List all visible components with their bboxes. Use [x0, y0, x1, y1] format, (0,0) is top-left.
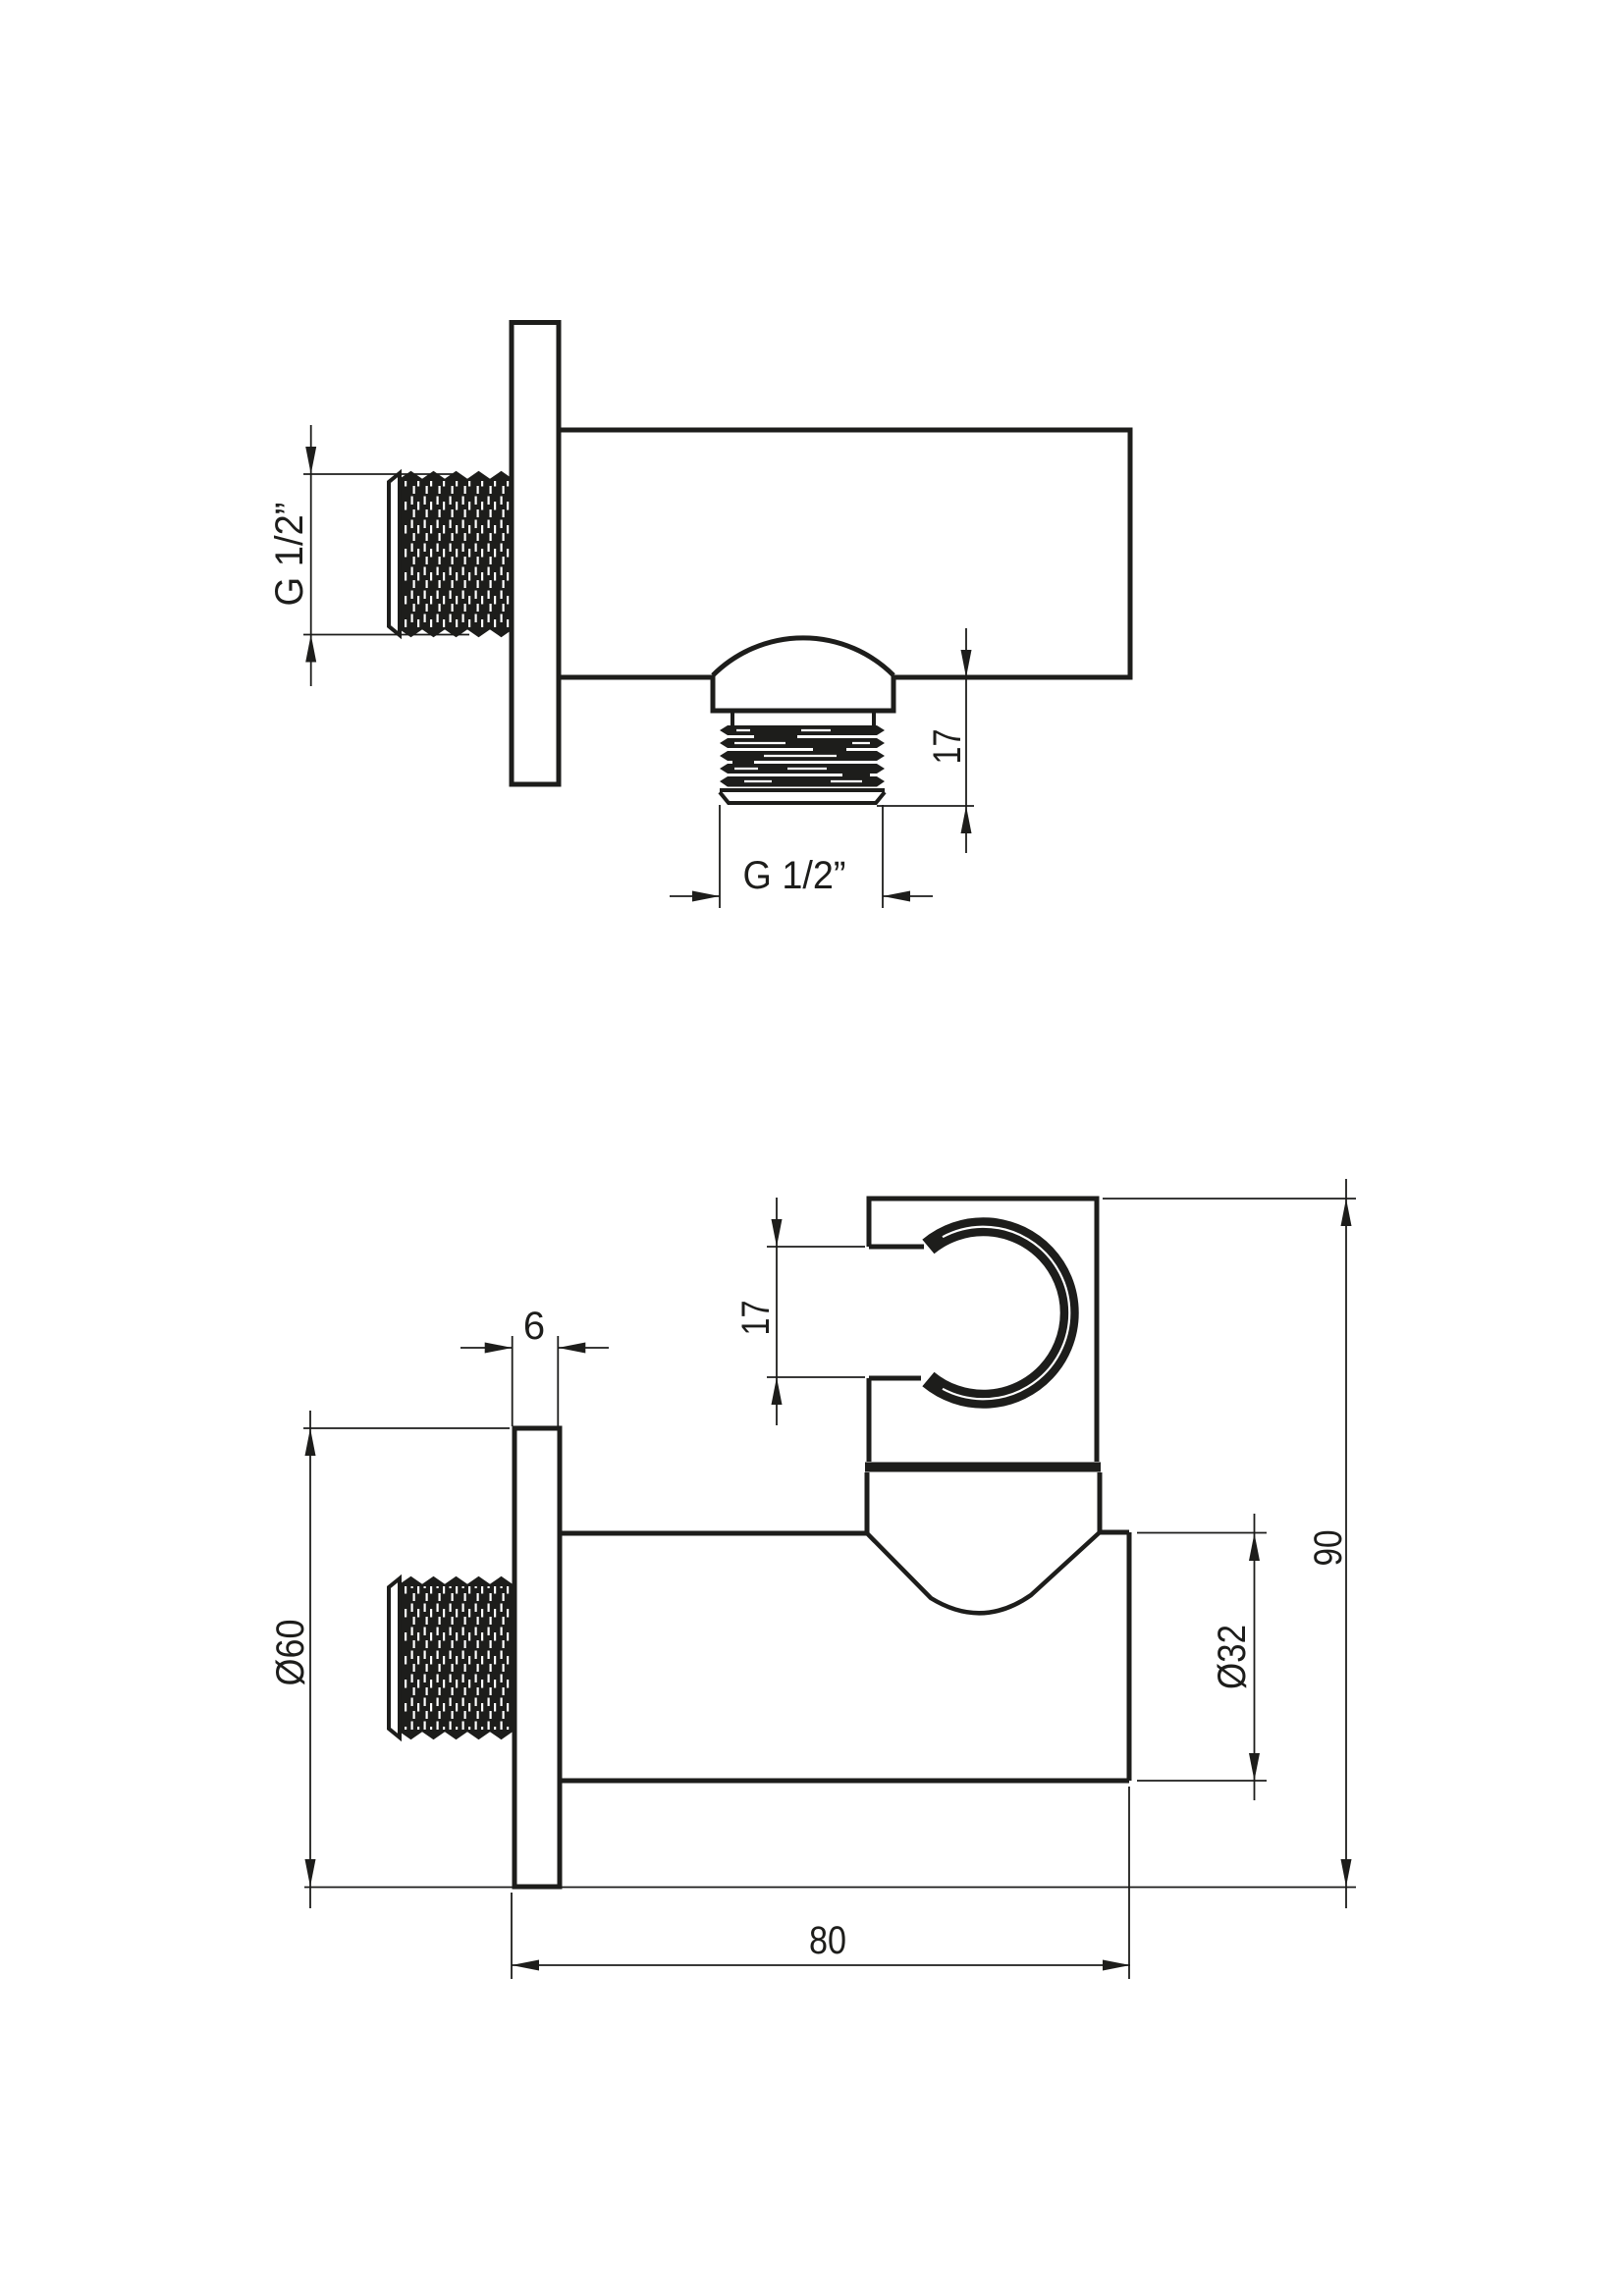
svg-text:G 1/2”: G 1/2” [743, 854, 846, 897]
svg-text:Ø60: Ø60 [269, 1620, 312, 1686]
svg-text:90: 90 [1307, 1530, 1350, 1567]
svg-text:6: 6 [523, 1305, 545, 1348]
svg-text:80: 80 [809, 1919, 846, 1962]
svg-text:Ø32: Ø32 [1211, 1625, 1254, 1689]
svg-text:17: 17 [926, 729, 969, 765]
svg-text:17: 17 [734, 1301, 778, 1336]
svg-text:G 1/2”: G 1/2” [268, 503, 311, 607]
